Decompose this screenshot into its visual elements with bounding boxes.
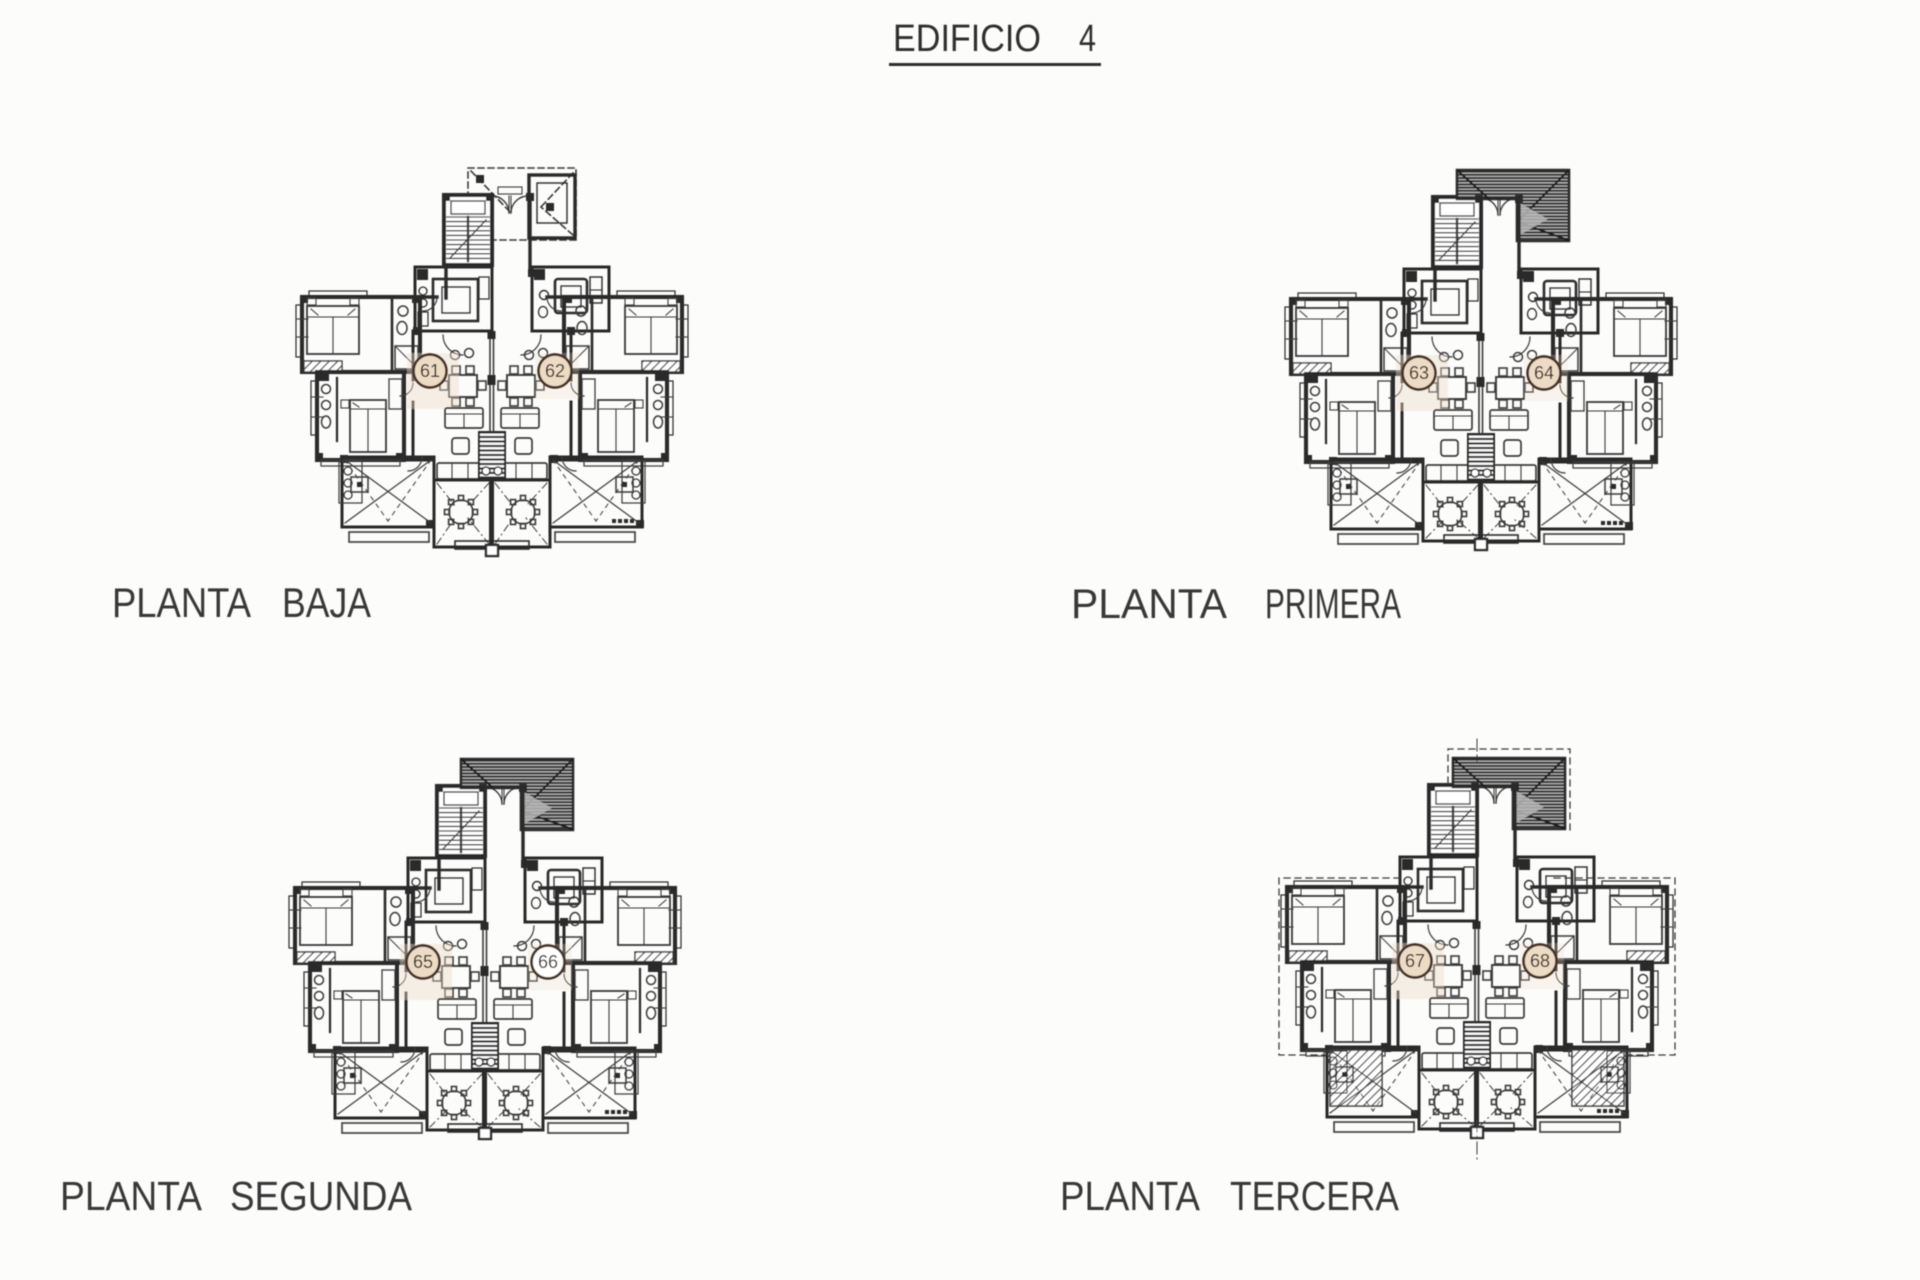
svg-text:66: 66 bbox=[538, 952, 558, 972]
svg-text:PRIMERA: PRIMERA bbox=[1265, 580, 1401, 627]
svg-text:61: 61 bbox=[420, 361, 440, 381]
svg-text:62: 62 bbox=[545, 361, 565, 381]
svg-text:63: 63 bbox=[1409, 363, 1429, 383]
svg-text:67: 67 bbox=[1405, 951, 1425, 971]
svg-text:PLANTA: PLANTA bbox=[112, 579, 251, 626]
svg-text:64: 64 bbox=[1534, 363, 1554, 383]
svg-text:4: 4 bbox=[1079, 18, 1096, 60]
svg-text:PLANTA: PLANTA bbox=[1071, 580, 1227, 627]
svg-text:SEGUNDA: SEGUNDA bbox=[230, 1173, 413, 1219]
svg-text:EDIFICIO: EDIFICIO bbox=[893, 18, 1041, 60]
svg-text:TERCERA: TERCERA bbox=[1230, 1173, 1400, 1219]
svg-text:PLANTA: PLANTA bbox=[1060, 1173, 1201, 1219]
svg-text:PLANTA: PLANTA bbox=[60, 1173, 203, 1219]
svg-text:65: 65 bbox=[413, 952, 433, 972]
svg-text:BAJA: BAJA bbox=[282, 579, 371, 626]
svg-text:68: 68 bbox=[1530, 951, 1550, 971]
